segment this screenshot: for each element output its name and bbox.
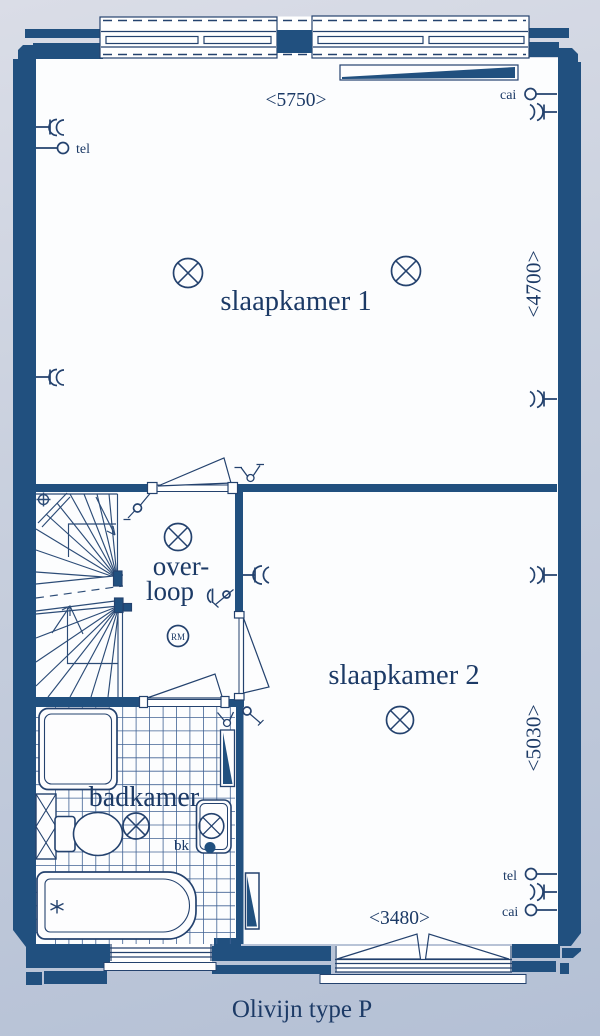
svg-text:tel: tel [76, 142, 90, 157]
svg-text:<3480>: <3480> [369, 908, 430, 929]
svg-text:<4700>: <4700> [522, 250, 546, 317]
svg-text:cai: cai [500, 88, 516, 103]
svg-text:cai: cai [502, 905, 518, 920]
svg-text:bk: bk [174, 838, 190, 854]
svg-text:badkamer: badkamer [89, 782, 200, 813]
svg-text:tel: tel [503, 869, 517, 884]
svg-text:Olivijn type P: Olivijn type P [232, 996, 372, 1023]
svg-text:slaapkamer 2: slaapkamer 2 [328, 660, 479, 691]
svg-text:<5750>: <5750> [266, 90, 327, 111]
svg-text:slaapkamer 1: slaapkamer 1 [220, 286, 371, 317]
svg-text:RM: RM [171, 632, 185, 642]
svg-text:loop: loop [146, 576, 194, 606]
svg-text:<5030>: <5030> [522, 704, 546, 771]
